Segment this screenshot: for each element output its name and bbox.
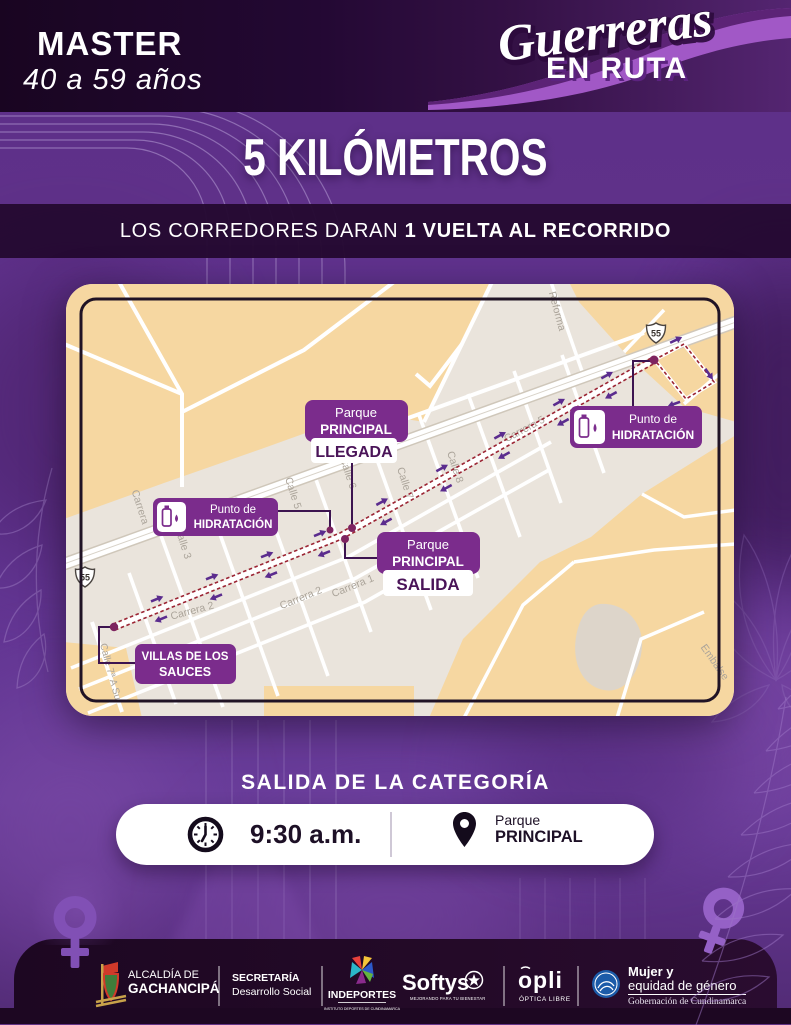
- svg-text:INSTITUTO DEPORTES DE CUNDINAM: INSTITUTO DEPORTES DE CUNDINAMARCA: [324, 1007, 401, 1011]
- svg-text:VILLAS DE LOS: VILLAS DE LOS: [142, 651, 229, 663]
- svg-text:Punto de: Punto de: [629, 412, 677, 426]
- svg-text:ÓPTICA LIBRE: ÓPTICA LIBRE: [519, 994, 571, 1003]
- svg-text:SAUCES: SAUCES: [159, 665, 211, 679]
- svg-text:opli: opli: [518, 967, 563, 993]
- svg-text:Desarrollo Social: Desarrollo Social: [232, 986, 311, 998]
- svg-text:Parque: Parque: [407, 537, 449, 552]
- svg-text:Punto de: Punto de: [210, 504, 256, 516]
- svg-text:Softys: Softys: [402, 970, 469, 995]
- svg-text:ALCALDÍA DE: ALCALDÍA DE: [128, 968, 199, 981]
- svg-text:SALIDA: SALIDA: [396, 575, 459, 594]
- svg-text:Parque: Parque: [335, 405, 377, 420]
- svg-text:HIDRATACIÓN: HIDRATACIÓN: [612, 427, 694, 442]
- svg-text:PRINCIPAL: PRINCIPAL: [392, 554, 464, 569]
- svg-text:SECRETARÍA: SECRETARÍA: [232, 971, 300, 984]
- svg-text:PRINCIPAL: PRINCIPAL: [320, 422, 392, 437]
- svg-text:INDEPORTES: INDEPORTES: [328, 989, 396, 1001]
- svg-text:EN RUTA: EN RUTA: [546, 52, 688, 85]
- svg-text:55: 55: [651, 329, 661, 339]
- svg-text:MEJORANDO PARA TU BIENESTAR: MEJORANDO PARA TU BIENESTAR: [410, 996, 485, 1001]
- svg-text:LLEGADA: LLEGADA: [315, 444, 393, 461]
- svg-text:HIDRATACIÓN: HIDRATACIÓN: [194, 518, 273, 531]
- svg-text:GACHANCIPÁ: GACHANCIPÁ: [128, 981, 220, 996]
